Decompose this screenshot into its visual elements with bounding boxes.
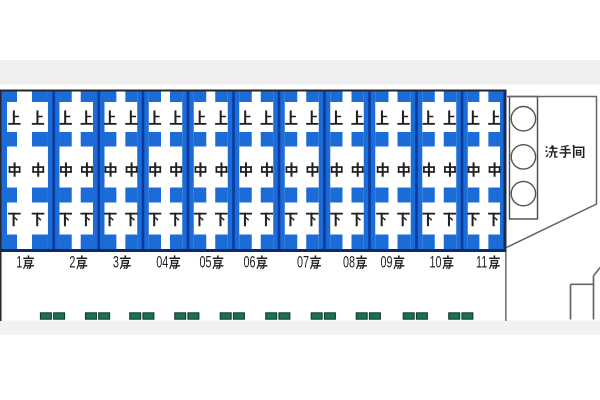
svg-text:3: 3 [113,252,119,271]
svg-text:06: 06 [244,252,256,271]
svg-text:10: 10 [430,252,442,271]
svg-text:11: 11 [476,252,487,271]
svg-text:05: 05 [200,252,212,271]
svg-text:04: 04 [156,252,168,271]
svg-text:1: 1 [16,252,22,271]
svg-text:08: 08 [343,252,355,271]
svg-text:07: 07 [297,252,309,271]
svg-text:2: 2 [69,252,75,271]
svg-text:09: 09 [381,252,393,271]
